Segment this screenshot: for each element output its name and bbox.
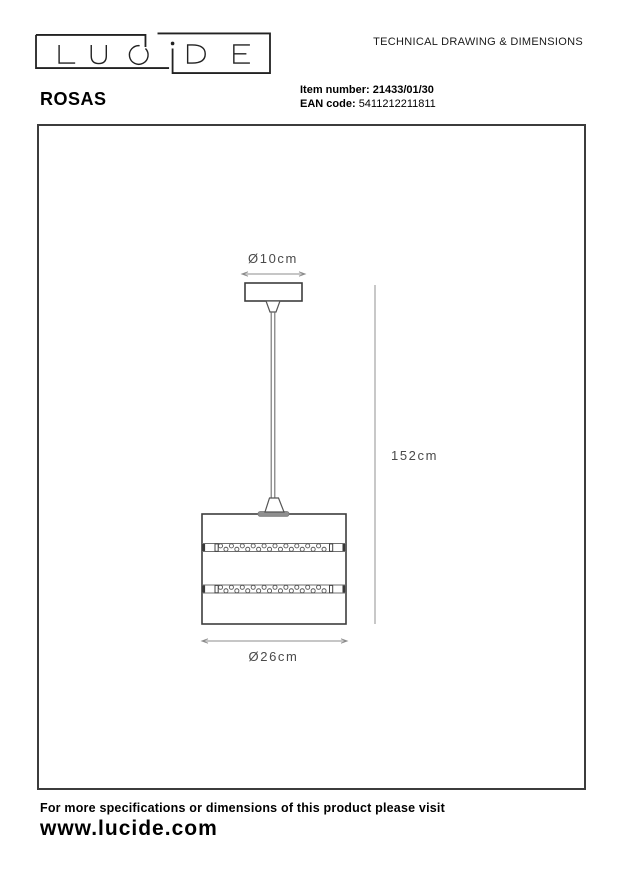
ean-row: EAN code: 5411212211811	[300, 98, 436, 112]
lucide-logo	[35, 31, 271, 75]
doc-title: TECHNICAL DRAWING & DIMENSIONS	[373, 36, 583, 48]
logo-letter-i-dot	[171, 42, 175, 46]
logo-letter-l	[59, 45, 75, 63]
lamp-socket	[265, 498, 284, 512]
footer: For more specifications or dimensions of…	[40, 801, 445, 841]
suspension-cord	[271, 312, 275, 498]
item-info: Item number: 21433/01/30 EAN code: 54112…	[300, 84, 436, 111]
dim-label-top-diameter: Ø10cm	[248, 251, 298, 266]
drawing-frame: Ø10cm	[37, 124, 586, 790]
dim-line-top	[242, 272, 305, 276]
ceiling-canopy	[245, 283, 302, 301]
dim-label-bottom-diameter: Ø26cm	[249, 649, 299, 664]
ean-label: EAN code:	[300, 98, 356, 110]
dim-label-height: 152cm	[391, 448, 438, 463]
logo-box-outline	[158, 33, 270, 73]
logo-letter-e	[234, 45, 250, 63]
pendant-lamp-drawing: Ø10cm	[39, 126, 584, 788]
item-number-label: Item number:	[300, 84, 370, 96]
logo-letter-d	[188, 45, 206, 63]
ean-value: 5411212211811	[359, 98, 436, 110]
logo-letter-u	[91, 45, 106, 64]
item-number-value: 21433/01/30	[373, 84, 434, 96]
dim-line-bottom	[202, 639, 347, 643]
logo-letter-c	[129, 46, 148, 65]
product-name: ROSAS	[40, 89, 107, 110]
lamp-shade	[202, 514, 346, 624]
cord-grip	[266, 301, 280, 312]
footer-note: For more specifications or dimensions of…	[40, 801, 445, 815]
website-url: www.lucide.com	[40, 817, 445, 841]
item-number-row: Item number: 21433/01/30	[300, 84, 436, 98]
